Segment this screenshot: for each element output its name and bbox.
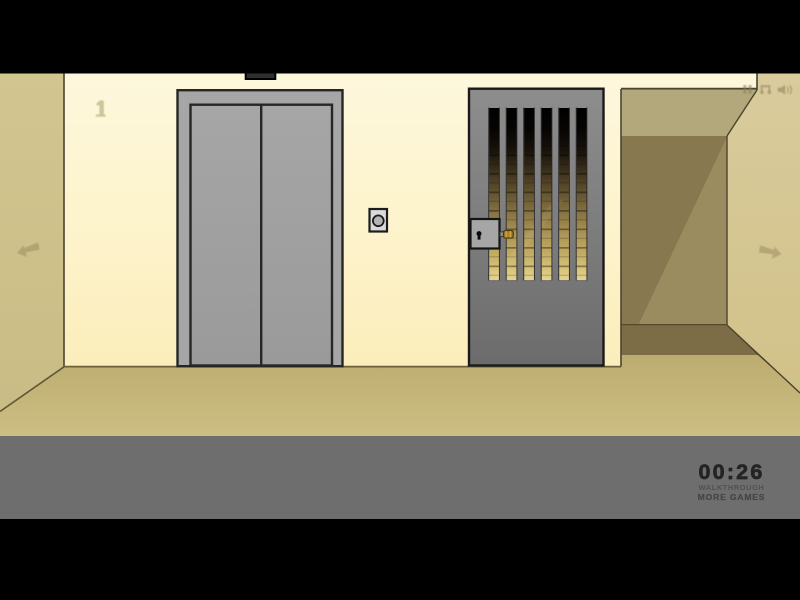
svg-text:WALKTHROUGH: WALKTHROUGH bbox=[699, 483, 765, 492]
svg-text:00:26: 00:26 bbox=[699, 460, 765, 484]
svg-text:MORE GAMES: MORE GAMES bbox=[698, 492, 766, 502]
